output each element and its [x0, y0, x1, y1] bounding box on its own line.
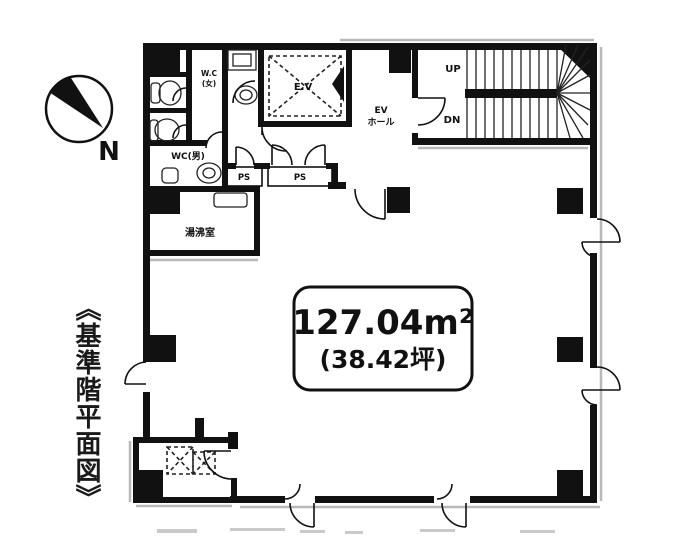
stair-landing-edge	[465, 89, 557, 98]
north-label: N	[98, 137, 120, 167]
stairs-up-label: UP	[445, 64, 460, 75]
kitchenette: 湯沸室	[185, 193, 247, 239]
wc-women: W.C (女)	[150, 69, 218, 141]
elevator-door-marker	[332, 66, 344, 102]
wc-men-label: WC(男)	[171, 151, 205, 162]
floor-plan-page: UP DN E.V EV ホール W.C (女) WC(男)	[0, 0, 678, 541]
elevator-shaft: E.V	[269, 56, 344, 116]
drawing-title: 《基準階平面図》	[68, 295, 105, 535]
area-square-meters: 127.04m²	[292, 303, 474, 343]
stair-treads-lower	[467, 98, 557, 138]
area-tsubo: (38.42坪)	[320, 345, 447, 374]
cutoff-caption-smudge	[157, 528, 555, 534]
structural-columns	[138, 43, 590, 497]
kitchenette-label: 湯沸室	[185, 226, 215, 239]
wc-women-label-line1: W.C	[201, 69, 218, 78]
ev-hall-label-line2: ホール	[367, 117, 394, 128]
ps-label-2: PS	[294, 173, 306, 183]
service-sink-area	[228, 50, 286, 151]
ev-hall-label-line1: EV	[374, 106, 387, 116]
stairwell: UP DN	[444, 45, 590, 138]
stairs-down-label: DN	[444, 115, 461, 126]
stair-treads-upper	[467, 50, 557, 89]
outer-walls	[143, 43, 597, 503]
compass-needle	[49, 78, 103, 128]
ps-ducts: PS PS	[226, 167, 332, 186]
compass: N	[46, 76, 120, 167]
ev-hall: EV ホール	[367, 106, 394, 128]
elevator-shaft-label: E.V	[294, 82, 313, 93]
ps-label-1: PS	[238, 173, 250, 183]
wc-women-label-line2: (女)	[202, 78, 216, 88]
area-label: 127.04m² (38.42坪)	[292, 287, 474, 390]
